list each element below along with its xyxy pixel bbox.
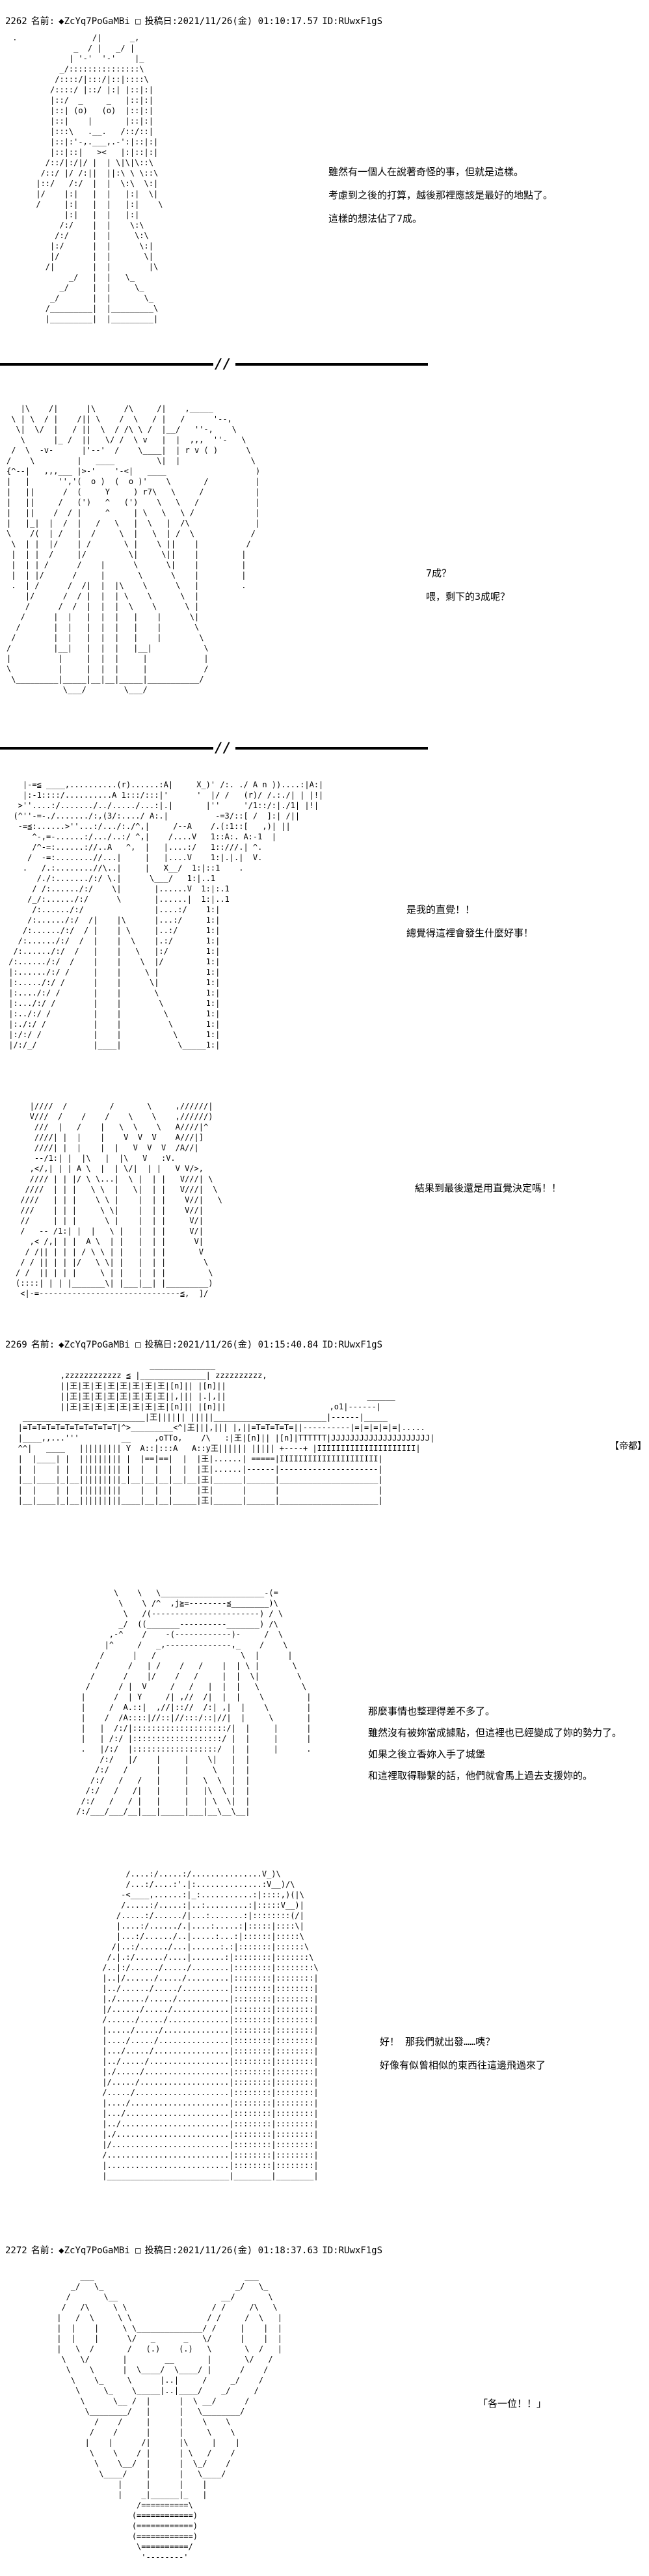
date-label: 投稿日:	[145, 1340, 178, 1350]
location-label-teito: 【帝都】	[610, 1439, 646, 1452]
post-header-2269: 2269名前:◆ZcYq7PoGaMBi □投稿日:2021/11/26(金) …	[5, 1338, 386, 1351]
ascii-art-character-4: |//// / / \ ,//////| V/// / / / \ \ ,///…	[16, 1101, 222, 1299]
name-label: 名前:	[31, 2245, 55, 2256]
ascii-art-character-3: |-=≦ ____,..........(r)......:A| X_)' /:…	[4, 780, 323, 1050]
ascii-art-character-1: . /| _, _ / | _/ | | '-' '-' |_ _/::::::…	[8, 33, 163, 324]
poster-name: ◆ZcYq7PoGaMBi □	[59, 1340, 140, 1350]
speech-bubble-6: 好！ 那我們就出發……咦？ 好像有似曾相似的東西往這邊飛過來了	[380, 2030, 546, 2077]
scene-divider-2: //	[0, 742, 429, 756]
post-number: 2272	[5, 2245, 27, 2256]
post-datetime: 2021/11/26(金) 01:15:40.84	[178, 1340, 318, 1350]
thread-page: 2262名前:◆ZcYq7PoGaMBi □投稿日:2021/11/26(金) …	[0, 0, 649, 2576]
divider-bar-right	[235, 363, 428, 366]
post-datetime: 2021/11/26(金) 01:10:17.57	[178, 16, 318, 27]
post-id: ID:RUwxF1gS	[322, 2245, 382, 2256]
ascii-art-character-6: /....:/.....:/...............V_)\ /...:/…	[98, 1869, 319, 2181]
name-label: 名前:	[31, 1340, 55, 1350]
scene-divider-1: //	[0, 358, 429, 372]
speech-bubble-7: 「各一位！！」	[478, 2392, 546, 2415]
post-header-2272: 2272名前:◆ZcYq7PoGaMBi □投稿日:2021/11/26(金) …	[5, 2244, 386, 2257]
post-id: ID:RUwxF1gS	[322, 16, 382, 27]
speech-bubble-2: 7成？ 喂，剩下的3成呢？	[426, 562, 510, 608]
divider-bar-left	[0, 747, 213, 750]
post-id: ID:RUwxF1gS	[322, 1340, 382, 1350]
divider-bar-right	[235, 747, 428, 750]
speech-bubble-5: 那麼事情也整理得差不多了。 雖然沒有被妳當成據點，但這裡也已經變成了妳的勢力了。…	[368, 1701, 622, 1787]
speech-bubble-3: 是我的直覺！！ 總覺得這裡會發生什麼好事！	[406, 898, 533, 945]
divider-slashes: //	[215, 740, 231, 755]
post-header-2262: 2262名前:◆ZcYq7PoGaMBi □投稿日:2021/11/26(金) …	[5, 14, 386, 27]
post-number: 2262	[5, 16, 27, 27]
ascii-art-character-2: |\ /| |\ /\ /| ,_____ \ | \ / | /|| \ / …	[7, 403, 260, 695]
ascii-art-imperial-capital: ______________ ,zzzzzzzzzzzz ≦ |________…	[4, 1360, 434, 1506]
date-label: 投稿日:	[145, 2245, 178, 2256]
post-number: 2269	[5, 1340, 27, 1350]
divider-slashes: //	[215, 356, 231, 372]
ascii-art-fairy: ___ ___ _/ \_ _/ \_ / \__ __/ \ / /\ \ \…	[52, 2271, 282, 2562]
speech-bubble-4: 結果到最後還是用直覺決定嗎！！	[415, 1176, 561, 1200]
divider-bar-left	[0, 363, 213, 366]
post-datetime: 2021/11/26(金) 01:18:37.63	[178, 2245, 318, 2256]
poster-name: ◆ZcYq7PoGaMBi □	[59, 2245, 140, 2256]
date-label: 投稿日:	[145, 16, 178, 27]
name-label: 名前:	[31, 16, 55, 27]
speech-bubble-1: 雖然有一個人在說著奇怪的事，但就是這樣。 考慮到之後的打算，越後那裡應該是最好的…	[328, 160, 553, 230]
poster-name: ◆ZcYq7PoGaMBi □	[59, 16, 140, 27]
ascii-art-character-5: \ \ \______________________-(= \ \ /^ ,j…	[72, 1588, 311, 1817]
